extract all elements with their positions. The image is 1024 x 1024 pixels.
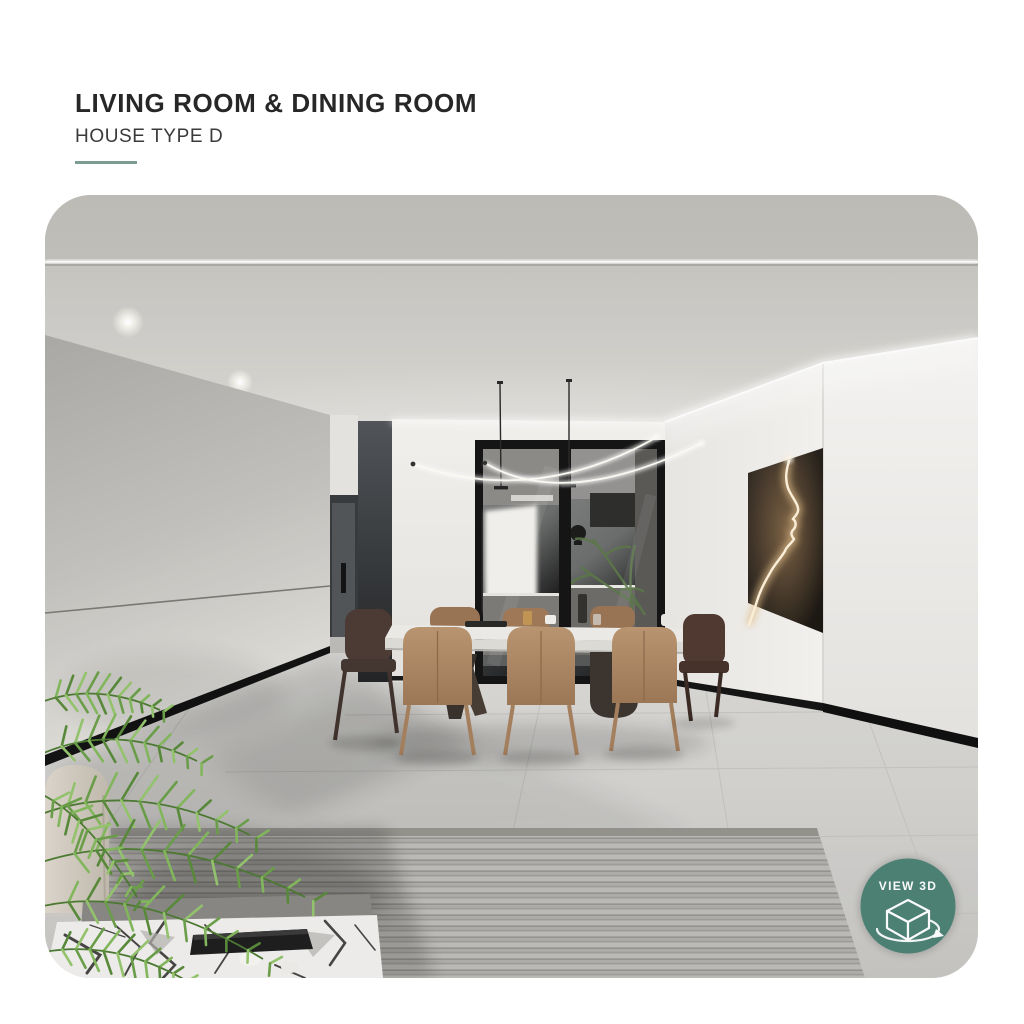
page-subtitle: HOUSE TYPE D (75, 126, 477, 148)
living-dining-render: VIEW 3D (45, 195, 978, 978)
page-title: LIVING ROOM & DINING ROOM (75, 88, 477, 119)
page: LIVING ROOM & DINING ROOM HOUSE TYPE D (0, 0, 1024, 1024)
vignette (45, 195, 978, 978)
page-header: LIVING ROOM & DINING ROOM HOUSE TYPE D (75, 88, 477, 164)
accent-underline (75, 161, 137, 164)
render-viewport: VIEW 3D (45, 195, 978, 978)
